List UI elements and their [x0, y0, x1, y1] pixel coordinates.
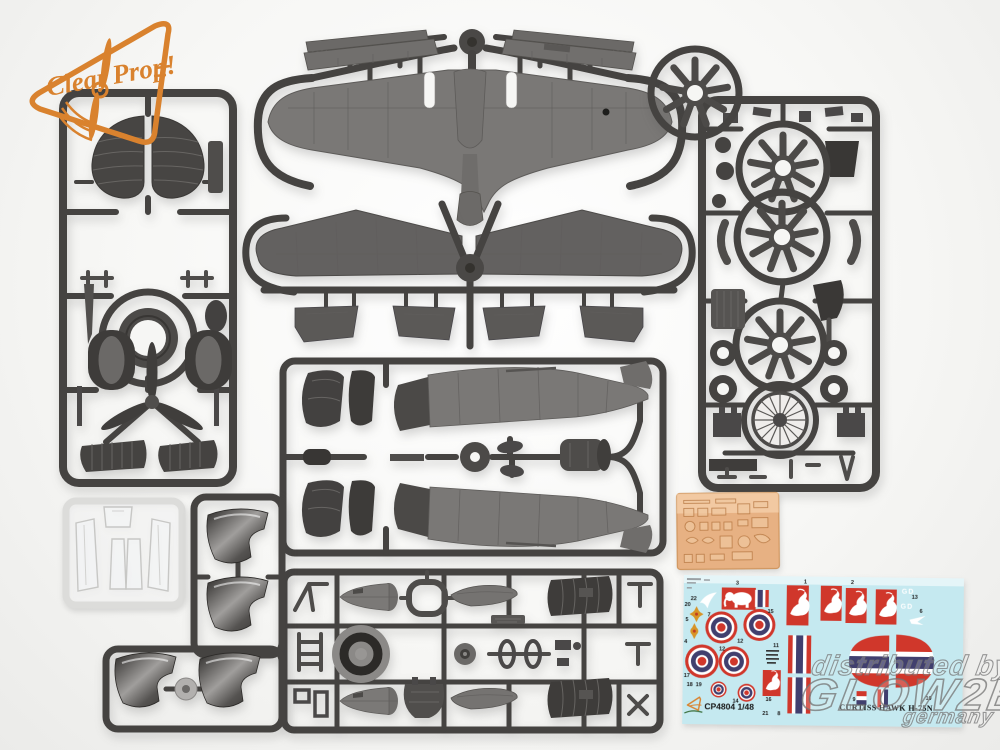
stripe-flag-decal — [788, 635, 811, 673]
cowl-barrel-part — [560, 439, 611, 471]
wheel-part — [88, 330, 135, 390]
cowl-segment-part — [302, 370, 375, 427]
fuselage-half-part — [394, 361, 652, 431]
decal-part-number: 18 — [687, 682, 693, 688]
decal-part-number: 8 — [777, 711, 780, 717]
decal-part-number: 12 — [737, 639, 743, 645]
decal-part-number: 22 — [691, 596, 697, 602]
flat-panel-part — [208, 141, 223, 193]
decal-sheet: GD GD — [682, 575, 964, 727]
decal-part-number: 21 — [762, 711, 768, 717]
hub-disc-part — [716, 162, 734, 180]
wheel-well-cutout — [424, 72, 435, 108]
rod-part — [214, 386, 219, 426]
small-bracket-part — [82, 272, 212, 286]
logo-word-2: Prop! — [109, 49, 179, 90]
stripe-flag-decal — [787, 677, 810, 713]
clear-prop-logo: Clear Prop! — [22, 12, 192, 152]
cowl-flap-panel-part — [207, 509, 268, 563]
decal-part-number: 17 — [684, 673, 690, 679]
washer-disc-part — [175, 678, 197, 700]
flap-part — [295, 306, 358, 342]
tiger-flag-decal — [763, 670, 781, 696]
decal-part-number: 15 — [768, 609, 774, 615]
fuselage-code-decal: GD — [901, 604, 914, 611]
cowl-front-part — [332, 625, 390, 683]
decal-part-number: 13 — [912, 595, 918, 601]
windscreen-frame-part — [401, 572, 455, 614]
decal-part-number: 1 — [804, 579, 807, 585]
cockpit-detail-sprue — [279, 564, 667, 736]
small-lever-part — [627, 584, 651, 714]
flap-part — [393, 306, 455, 340]
oval-part — [205, 300, 227, 332]
decal-part-number: 16 — [765, 697, 771, 703]
hub-disc-part — [712, 194, 726, 208]
cowl-segment-part — [302, 480, 375, 537]
hub-disc-part — [715, 137, 731, 153]
frame-bracket-part — [295, 584, 327, 716]
small-bracket-part — [555, 640, 581, 666]
decal-part-number: 11 — [773, 643, 779, 649]
kit-title-label: CURTISS HAWK H-75N — [839, 703, 933, 713]
decal-part-number: 9 — [852, 697, 855, 703]
ribbed-plate-part — [711, 289, 745, 329]
decal-part-number: 10 — [925, 696, 931, 702]
decal-part-number: 7 — [707, 612, 710, 618]
wheel-well-cutout — [506, 72, 517, 108]
decal-part-number: 20 — [685, 602, 691, 608]
stripe-flag-decal — [752, 590, 769, 607]
embossed-brand-plate — [491, 615, 525, 624]
cowl-panel-sprue — [98, 491, 288, 735]
decal-part-number: 5 — [685, 617, 688, 623]
decal-part-number: 12 — [719, 646, 725, 652]
teardrop-part — [496, 439, 523, 455]
strip-part — [390, 454, 424, 461]
teardrop-part — [499, 464, 524, 478]
engine-detail-sprue — [695, 93, 883, 495]
fairing-part — [158, 440, 217, 472]
wheel-part — [185, 330, 232, 390]
fuselage-sprue — [278, 351, 668, 563]
tail-strip-part — [461, 154, 479, 196]
photo-etch-fret — [676, 491, 781, 570]
rod-part — [77, 386, 82, 426]
ribbed-deck-part — [548, 576, 613, 616]
wing-hole — [603, 109, 610, 116]
product-photo-stage: GD GD — [0, 0, 1000, 750]
knob-part — [303, 449, 331, 465]
elephant-flag-decal — [722, 587, 756, 609]
fairing-part — [80, 440, 146, 472]
pylon-part — [84, 284, 94, 344]
wing-halves-sprue — [236, 196, 702, 352]
spinner-part — [340, 583, 398, 611]
fin-part — [813, 280, 844, 321]
decal-part-number: 3 — [736, 581, 739, 587]
decal-part-number: 6 — [920, 609, 923, 615]
spoked-wheel-part — [744, 384, 816, 456]
decal-part-number: 19 — [696, 682, 702, 688]
small-bracket-part — [723, 106, 863, 123]
kit-code-label: CP4804 1/48 — [704, 701, 754, 712]
decal-part-number: 2 — [851, 580, 854, 586]
flat-strip-part — [709, 459, 757, 471]
decal-part-number: 14 — [732, 699, 739, 705]
wing-center-section — [454, 69, 486, 148]
wheel-hub-part — [454, 643, 476, 665]
wing-halves-left-group — [246, 210, 469, 342]
